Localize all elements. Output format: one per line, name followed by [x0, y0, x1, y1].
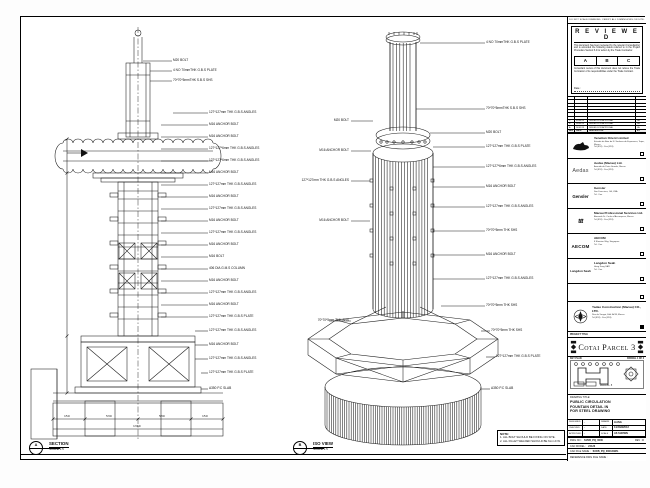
- annotation-label: 70*70*5mm THK SHS: [486, 229, 517, 232]
- contractor-block: Yadao Construction (Macau) CO., LTD. Rua…: [568, 302, 646, 332]
- annotation-label: 4 NO 70mmTHK G.B.S PLATE: [173, 69, 217, 72]
- consultant-row: GenslerGenslerSan Francisco, CA, USATel …: [568, 184, 646, 209]
- revision-cell: [636, 110, 646, 112]
- section-view-label: SECTION SCALE 1:5: [49, 442, 69, 452]
- checkbox: [640, 252, 644, 256]
- project-banner: Cotai Parcel 3: [568, 338, 646, 357]
- revision-cell: [588, 97, 636, 99]
- dim-label: 1360: [133, 424, 141, 428]
- annotation-label: 70*70*5mmTHK S.B.S SHS: [173, 79, 213, 82]
- revision-cell: 14/01/13: [575, 126, 588, 128]
- sheet-bottom-margin-line: [21, 454, 566, 455]
- revision-table: C05/04/13ISSUED FOR APPROVALLAB28/03/13I…: [568, 97, 646, 134]
- approved-label: APPROVED: [568, 431, 583, 437]
- annotation-label: 127*127mm THK G.B.S ANGLES: [209, 357, 256, 360]
- scale-value: AS SHOWN: [613, 431, 646, 437]
- revision-cell: LA: [636, 126, 646, 128]
- revision-cell: BY: [636, 130, 646, 132]
- scale-label: SCALE: [600, 431, 613, 437]
- iso-view-label: ISO VIEW SCALE 1:5: [313, 442, 333, 452]
- annotation-label: 127*127mm THK G.B.S PLATE: [496, 355, 541, 358]
- revision-cell: [636, 100, 646, 102]
- drawing-title-label: DRAWING TITLE:: [570, 396, 644, 399]
- rev-label: REV :: [635, 439, 642, 442]
- empty-consultant-row: [568, 284, 646, 302]
- revision-cell: [568, 100, 575, 102]
- company-address: Estrada da Baia de N. Senhora da Esperan…: [594, 141, 645, 149]
- revision-cell: A: [568, 126, 575, 128]
- annotation-label: M16 ANCHOR BOLT: [291, 219, 349, 222]
- annotation-label: M20 BOLT: [173, 59, 188, 62]
- revision-cell: ISSUED FOR APPROVAL: [588, 126, 636, 128]
- drawing-sheet-page: { "sheet": { "disclaimer": "DO NOT SCALE…: [0, 0, 650, 488]
- cad-file-label: CAD FILE NAME :: [570, 450, 591, 453]
- status-box-c: C: [618, 57, 639, 65]
- annotation-label: 127*127mm THK G.B.S PLATE: [209, 315, 254, 318]
- annotation-label: 70*70*5mm THK SHS: [491, 329, 522, 332]
- annotation-label: 127*127mm THK G.B.S ANGLES: [209, 183, 256, 186]
- revision-cell: [636, 113, 646, 115]
- company-name: Langdon Seah: [594, 261, 645, 265]
- section-detail-marker: A: [29, 441, 43, 455]
- company-logo: [568, 134, 593, 158]
- dwg-no-value: S15/B_PQ_0000: [584, 439, 603, 442]
- annotation-label: 127*127mm THK G.B.S ANGLES: [486, 277, 533, 280]
- contractor-address: Rua de Xangai, Edif. ACM, Macau Tel (853…: [592, 314, 644, 319]
- annotation-label: M16 ANCHOR BOLT: [209, 135, 239, 138]
- annotation-label: M16 BOLT: [209, 255, 224, 258]
- revision-cell: [588, 104, 636, 106]
- contractor-address-line: Tel (853) · Fax (853): [592, 317, 644, 320]
- cad-model-value: 24126: [588, 445, 595, 448]
- revision-cell: [575, 113, 588, 115]
- revision-cell: [636, 107, 646, 109]
- annotation-label: M16 ANCHOR BOLT: [209, 171, 239, 174]
- consultant-row: tttMacau Professional Services Ltd.Alame…: [568, 209, 646, 234]
- reference-label: REFERENCE DWG FILE NAME :: [570, 456, 608, 459]
- company-address: Alameda Dr. Carlos d'Assumpcao, MacauTel…: [594, 216, 645, 221]
- annotation-label: 127*127mm THK G.B.S ANGLES: [209, 207, 256, 210]
- company-name: Aedas (Macau) Ltd.: [594, 161, 645, 165]
- checkbox-filled: [640, 325, 644, 329]
- revision-cell: DATE: [575, 130, 588, 132]
- annotation-label: M16 ANCHOR BOLT: [209, 343, 239, 346]
- revision-cell: [575, 110, 588, 112]
- annotation-label: 70*70*5mm THK SHS: [291, 319, 349, 322]
- iso-marker-bubble: B: [294, 443, 306, 447]
- annotation-label: M16 ANCHOR BOLT: [486, 253, 516, 256]
- annotation-label: 127*127mm THK G.B.S ANGLES: [291, 179, 349, 182]
- status-box-b: B: [597, 57, 619, 65]
- status-boxes: A B C: [574, 56, 640, 66]
- annotation-label: 127*127*6mm THK G.B.S ANGLES: [486, 165, 536, 168]
- cad-model-label: CAD MODEL :: [570, 445, 586, 448]
- key-plan: KEY PLAN PARCEL 1 OF 3 PARCEL 3: [568, 357, 646, 395]
- dim-label: 530: [106, 414, 112, 418]
- section-marker-bubble: A: [30, 443, 42, 447]
- dim-label: 150: [64, 414, 70, 418]
- checkbox: [640, 152, 644, 156]
- revision-cell: REV: [568, 130, 575, 132]
- contractor-logo: [569, 303, 591, 330]
- rev-value: C: [642, 439, 644, 442]
- section-view: 150 530 530 150 1360 M20 BOLT4 NO 70mmTH…: [23, 21, 291, 446]
- annotation-label: 406 DIA G.M.S COLUMN: [209, 267, 245, 270]
- drawing-title-line: FOR STEEL DRAWING: [570, 409, 644, 414]
- revision-cell: B: [568, 123, 575, 125]
- annotation-label: M16 ANCHOR BOLT: [209, 279, 239, 282]
- checkbox: [640, 295, 644, 299]
- revision-cell: [568, 110, 575, 112]
- annotation-label: M16 ANCHOR BOLT: [209, 123, 239, 126]
- key-plan-note: PARCEL 3: [600, 383, 613, 387]
- checkbox: [640, 277, 644, 281]
- dim-label: 530: [159, 414, 165, 418]
- revision-cell: [575, 107, 588, 109]
- stamp-date-line: Date :: [574, 87, 640, 92]
- ornament-icon: [637, 340, 644, 354]
- ornament-icon: [570, 340, 577, 354]
- annotation-label: M16 ANCHOR BOLT: [486, 185, 516, 188]
- reviewed-stamp: R E V I E W E D This document has been r…: [568, 24, 646, 97]
- annotation-label: M16 ANCHOR BOLT: [291, 149, 349, 152]
- company-address: San Francisco, CA, USATel · Fax: [594, 191, 645, 196]
- annotation-label: 70*70*5mmTHK S.B.S SHS: [486, 107, 526, 110]
- annotation-label: 127*127mm THK G.B.S ANGLES: [209, 111, 256, 114]
- stamp-paragraph-2: Consultant review of this document does …: [574, 68, 640, 74]
- company-name: Gensler: [594, 186, 645, 190]
- cad-file-value: S15/B_PQ_0000.DWG: [593, 450, 619, 453]
- annotation-label: 127*127mm THK G.B.S ANGLES: [209, 291, 256, 294]
- annotation-label: 127*127mm THK G.B.S ANGLES: [209, 329, 256, 332]
- note-line: 2. ALL FILLET WELDED SHOULD BE 6mm F.W.: [500, 440, 562, 444]
- annotation-label: A350 P.C SLAB: [209, 387, 231, 390]
- revision-cell: ISSUED FOR APPROVAL: [588, 123, 636, 125]
- revision-cell: [588, 113, 636, 115]
- annotation-label: M20 BOLT: [486, 131, 501, 134]
- reference-row: REFERENCE DWG FILE NAME :: [568, 454, 646, 461]
- consultant-row: AedasAedas (Macau) Ltd.Avenida da Praia …: [568, 159, 646, 184]
- annotation-label: 70*70*5mm THK SHS: [486, 304, 517, 307]
- revision-cell: [588, 117, 636, 119]
- iso-scale-text: SCALE 1:5: [313, 447, 333, 451]
- revision-cell: [575, 97, 588, 99]
- revision-cell: LA: [636, 120, 646, 122]
- company-logo: ttt: [568, 209, 593, 233]
- company-logo: AECOM: [568, 234, 593, 258]
- revision-cell: [568, 107, 575, 109]
- company-address: 8 Shenton Way, SingaporeTel · Fax: [594, 241, 645, 246]
- sheet-border: 150 530 530 150 1360 M20 BOLT4 NO 70mmTH…: [20, 16, 645, 460]
- approved-value: -: [583, 431, 600, 437]
- reviewed-title: R E V I E W E D: [574, 28, 640, 43]
- annotation-label: 4 NO 70mmTHK G.B.S PLATE: [486, 41, 530, 44]
- company-logo: Langdon Seah: [568, 259, 593, 283]
- dwg-no-label: DWG NO :: [570, 439, 582, 442]
- consultant-list: Venetian Orient LimitedEstrada da Baia d…: [568, 134, 646, 284]
- title-block: DO NOT SCALE DRAWING. VERIFY ALL DIMENSI…: [567, 17, 646, 461]
- credits-table: DESIGNED - DRAWN LIANG CHECKED - DATE 14…: [568, 420, 646, 438]
- revision-cell: [568, 97, 575, 99]
- project-name: Cotai Parcel 3: [578, 343, 635, 352]
- revision-cell: [636, 104, 646, 106]
- revision-cell: [575, 100, 588, 102]
- annotation-label: M16 ANCHOR BOLT: [209, 219, 239, 222]
- notes-box: NOTE: 1. ALL BOLT SHOULD BE FIXING ON SI…: [497, 430, 565, 446]
- company-logo: Aedas: [568, 159, 593, 183]
- annotation-label: 127*127*6mm THK G.B.S ANGLES: [209, 147, 259, 150]
- revision-cell: [575, 117, 588, 119]
- revision-cell: [568, 117, 575, 119]
- annotation-label: M16 ANCHOR BOLT: [209, 243, 239, 246]
- key-plan-drawing: PARCEL 3: [570, 360, 644, 389]
- company-name: AECOM: [594, 236, 645, 240]
- checkbox: [640, 202, 644, 206]
- company-logo: Gensler: [568, 184, 593, 208]
- company-name: Venetian Orient Limited: [594, 136, 645, 140]
- iso-view: 4 NO 70mmTHK G.B.S PLATE70*70*5mmTHK S.B…: [291, 21, 565, 446]
- consultant-row: AECOMAECOM8 Shenton Way, SingaporeTel · …: [568, 234, 646, 259]
- revision-cell: 05/04/13: [575, 120, 588, 122]
- annotation-label: A350 P.C SLAB: [491, 387, 513, 390]
- annotation-label: 127*127mm THK G.B.S ANGLES: [209, 231, 256, 234]
- consultant-row: Venetian Orient LimitedEstrada da Baia d…: [568, 134, 646, 159]
- iso-label-text: ISO VIEW: [313, 442, 333, 447]
- section-label-text: SECTION: [49, 442, 69, 447]
- section-scale-text: SCALE 1:5: [49, 447, 69, 451]
- revision-cell: [588, 100, 636, 102]
- revision-row: REVDATEDESCRIPTIONBY: [568, 130, 646, 133]
- revision-cell: DESCRIPTION: [588, 130, 636, 132]
- revision-cell: [636, 117, 646, 119]
- checkbox: [640, 227, 644, 231]
- revision-cell: [588, 107, 636, 109]
- annotation-label: M16 ANCHOR BOLT: [209, 195, 239, 198]
- revision-cell: ISSUED FOR APPROVAL: [588, 120, 636, 122]
- status-box-a: A: [575, 57, 597, 65]
- revision-cell: [636, 97, 646, 99]
- company-address: Hong Kong SARTel · Fax: [594, 266, 645, 271]
- disclaimer-strip: DO NOT SCALE DRAWING. VERIFY ALL DIMENSI…: [568, 17, 646, 24]
- annotation-label: 127*127mm THK G.B.S ANGLES: [486, 205, 533, 208]
- contractor-name: Yadao Construction (Macau) CO., LTD.: [592, 305, 644, 313]
- revision-cell: 28/03/13: [575, 123, 588, 125]
- drawing-title-block: DRAWING TITLE: PUBLIC CIRCULATION FOUNTA…: [568, 395, 646, 420]
- dim-label: 150: [202, 414, 208, 418]
- annotation-label: M20 BOLT: [291, 119, 349, 122]
- revision-cell: [568, 104, 575, 106]
- annotation-label: M16 ANCHOR BOLT: [209, 303, 239, 306]
- revision-cell: C: [568, 120, 575, 122]
- company-name: Macau Professional Services Ltd.: [594, 211, 645, 215]
- annotation-label: 127*127mm THK G.B.S PLATE: [486, 145, 531, 148]
- consultant-row: Langdon SeahLangdon SeahHong Kong SARTel…: [568, 259, 646, 283]
- annotation-label: 127*127mm THK G.B.S PLATE: [209, 371, 254, 374]
- iso-detail-marker: B: [293, 441, 307, 455]
- company-address: Avenida da Praia Grande, MacauTel (853) …: [594, 166, 645, 171]
- annotation-label: 127*127*6mm THK G.B.S ANGLES: [209, 159, 259, 162]
- stamp-paragraph-1: This document has been reviewed by the r…: [574, 45, 640, 54]
- checkbox: [640, 177, 644, 181]
- revision-cell: [568, 113, 575, 115]
- revision-cell: [588, 110, 636, 112]
- revision-cell: LA: [636, 123, 646, 125]
- revision-cell: [575, 104, 588, 106]
- iso-drawing: [291, 21, 565, 446]
